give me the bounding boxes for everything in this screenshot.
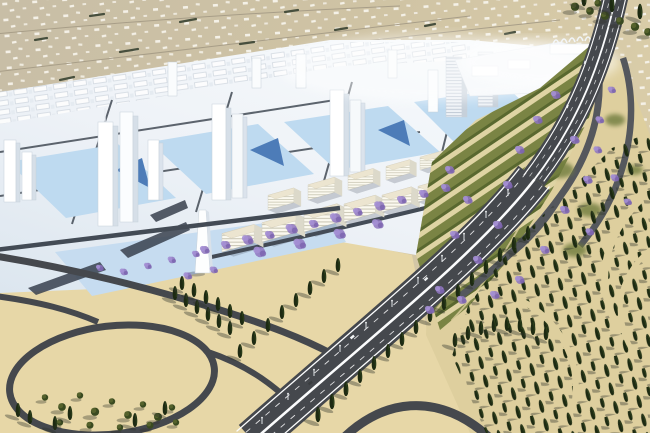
- tower: [168, 62, 177, 96]
- tower: [252, 58, 261, 88]
- tower: [350, 100, 365, 172]
- tower: [120, 112, 138, 222]
- masterplan-rendering: [0, 0, 650, 433]
- tower: [22, 152, 36, 200]
- tower: [232, 114, 247, 198]
- tower: [4, 140, 20, 202]
- tower: [148, 140, 163, 200]
- tower: [330, 90, 349, 176]
- rendering-canvas: [0, 0, 650, 433]
- tower: [212, 104, 231, 200]
